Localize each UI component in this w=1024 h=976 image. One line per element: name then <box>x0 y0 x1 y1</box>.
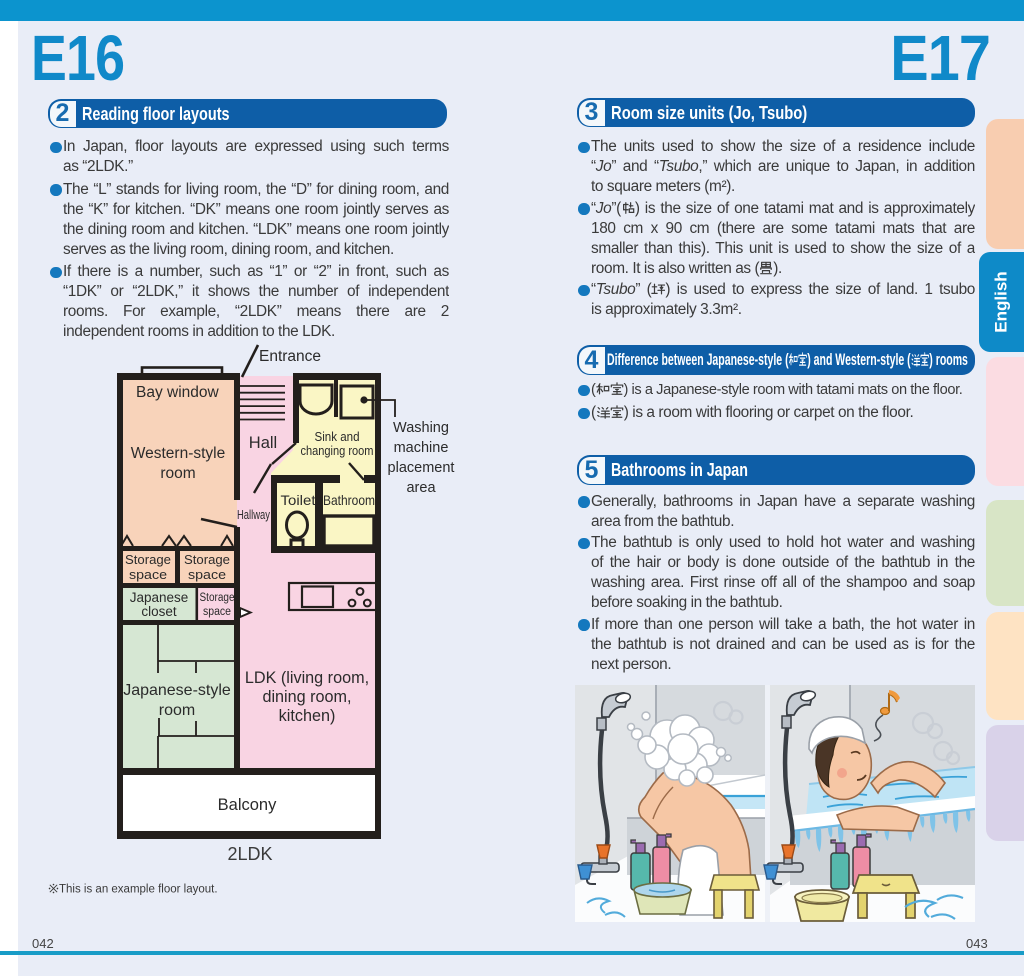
svg-text:machine: machine <box>394 440 449 456</box>
svg-text:closet: closet <box>141 604 177 619</box>
svg-text:Hallway: Hallway <box>237 507 270 522</box>
svg-text:Japanese-style: Japanese-style <box>123 682 231 699</box>
svg-text:Storage: Storage <box>184 552 230 567</box>
svg-text:Bathroom: Bathroom <box>323 492 375 508</box>
svg-text:Washing: Washing <box>393 420 449 436</box>
svg-text:Toilet: Toilet <box>281 492 316 508</box>
svg-text:Hall: Hall <box>249 434 277 452</box>
svg-text:dining room,: dining room, <box>262 688 351 706</box>
svg-text:Western-style: Western-style <box>131 445 225 462</box>
svg-text:space: space <box>129 567 167 582</box>
svg-text:Bay window: Bay window <box>136 384 220 401</box>
svg-text:changing room: changing room <box>301 443 374 458</box>
svg-text:space: space <box>203 606 231 618</box>
svg-text:placement: placement <box>388 460 455 476</box>
svg-text:space: space <box>188 567 226 582</box>
svg-text:Japanese: Japanese <box>130 590 189 605</box>
svg-text:room: room <box>160 465 195 482</box>
svg-text:room: room <box>159 702 195 719</box>
svg-text:kitchen): kitchen) <box>279 707 336 725</box>
svg-text:LDK (living room,: LDK (living room, <box>245 669 369 687</box>
svg-text:Storage: Storage <box>125 552 171 567</box>
svg-text:Sink and: Sink and <box>315 429 360 444</box>
svg-text:Balcony: Balcony <box>218 796 277 814</box>
svg-text:area: area <box>406 480 436 496</box>
svg-text:Storage: Storage <box>200 592 235 604</box>
svg-text:Entrance: Entrance <box>259 348 321 365</box>
